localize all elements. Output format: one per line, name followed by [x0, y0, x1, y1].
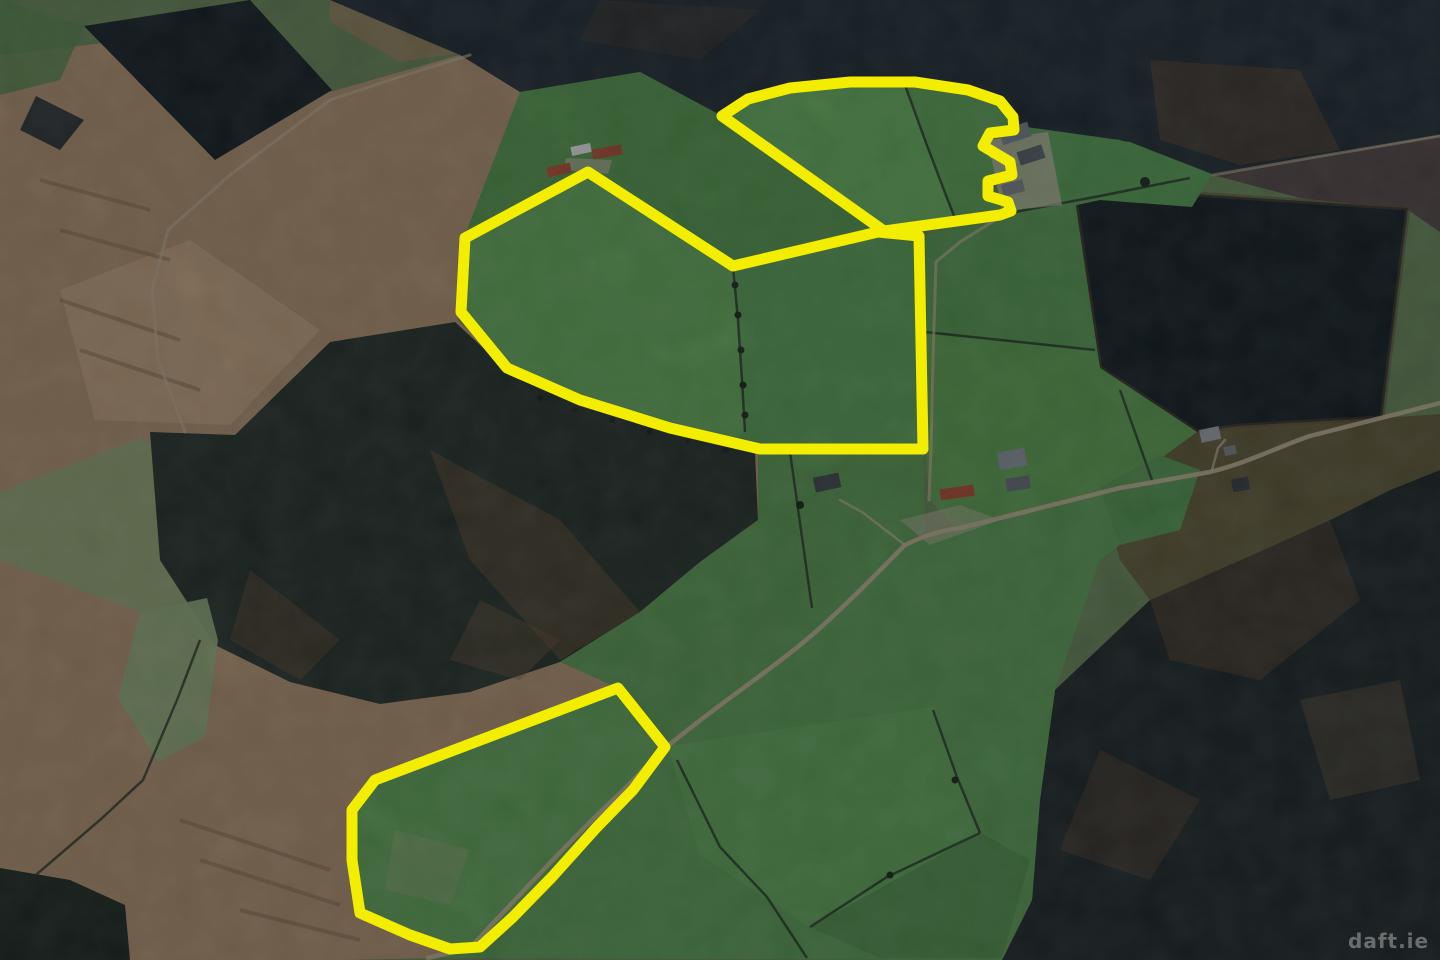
- daft-watermark: daft.ie: [1348, 929, 1429, 953]
- satellite-image-canvas: daft.ie: [0, 0, 1440, 960]
- aerial-photo: daft.ie: [0, 0, 1440, 960]
- texture-grain: [0, 0, 1440, 960]
- photo-texture: [0, 0, 1440, 960]
